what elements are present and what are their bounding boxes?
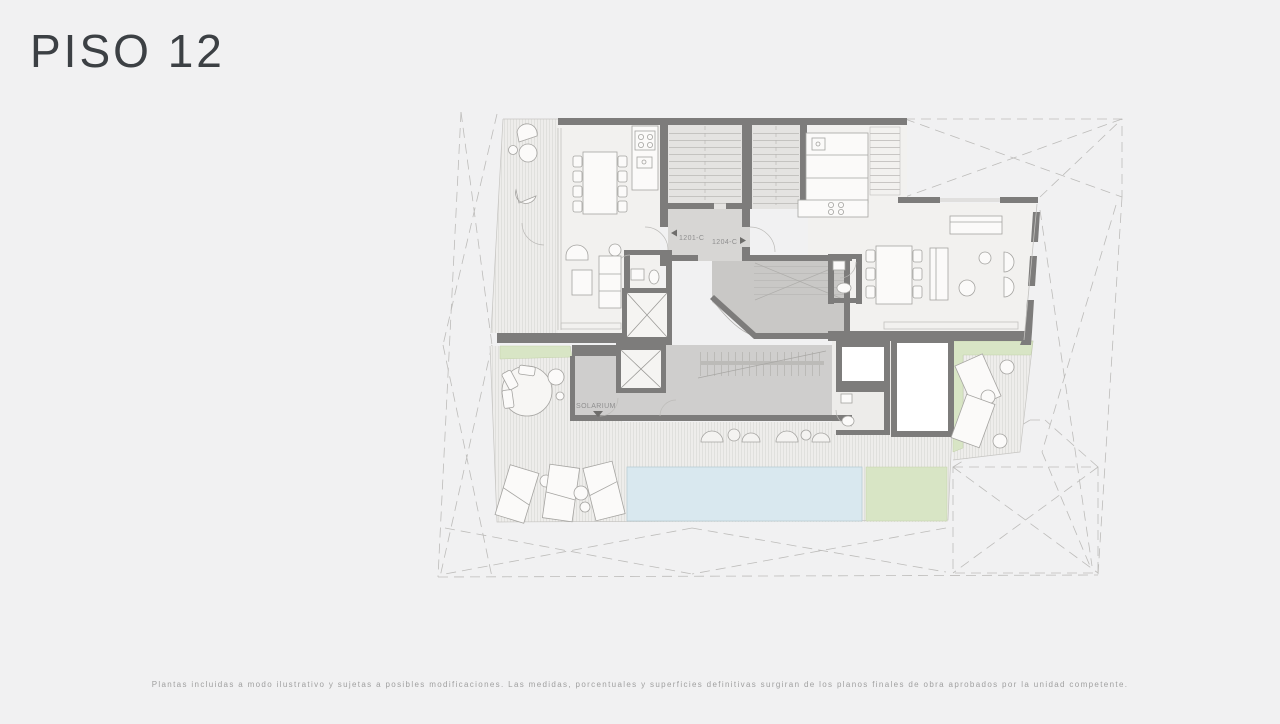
pool [627, 467, 862, 521]
floor-plan-canvas: 1201-C 1204-C SOLARIUM [0, 0, 1280, 719]
elevator-icon [616, 288, 672, 393]
solarium-label: SOLARIUM [576, 403, 616, 410]
unit-1204-label: 1204-C [712, 239, 737, 246]
kitchen-1201 [632, 126, 658, 190]
kitchen-1204 [798, 133, 868, 217]
floor-plan: 1201-C 1204-C SOLARIUM [0, 0, 1280, 719]
disclaimer-text: Plantas incluidas a modo ilustrativo y s… [0, 680, 1280, 689]
unit-1201-label: 1201-C [679, 235, 704, 242]
sun-loungers [495, 461, 625, 523]
